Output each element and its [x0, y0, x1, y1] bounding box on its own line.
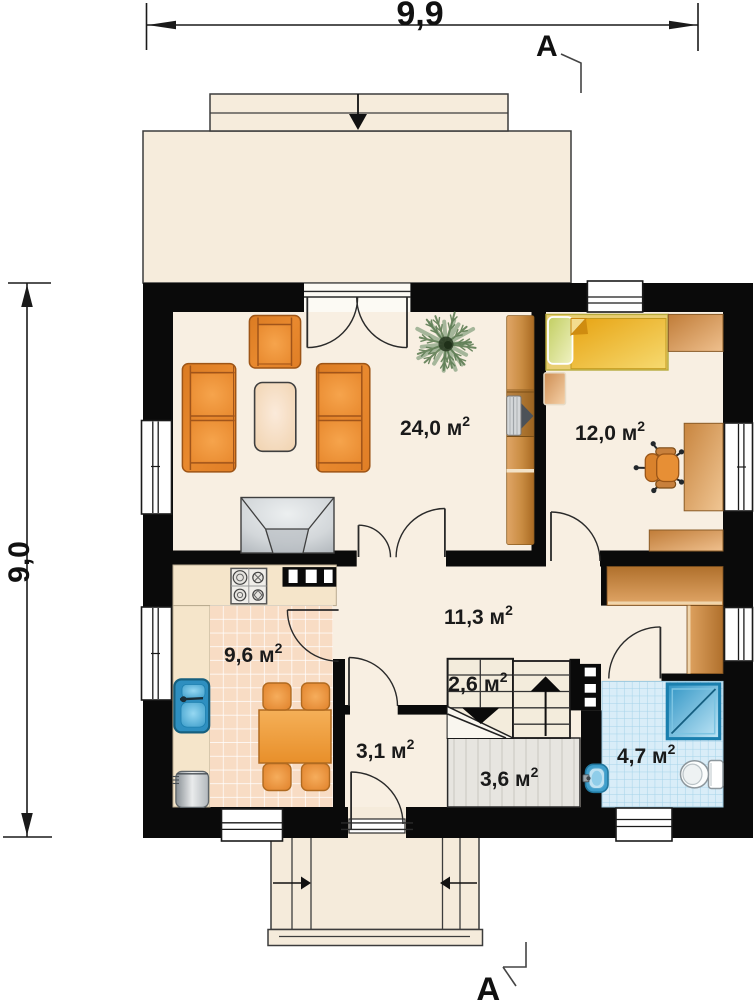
svg-text:2,6 м2: 2,6 м2 — [448, 669, 508, 696]
svg-text:A: A — [476, 971, 501, 1000]
svg-text:9,9: 9,9 — [396, 0, 443, 33]
svg-text:9,0: 9,0 — [3, 541, 36, 583]
svg-text:4,7 м2: 4,7 м2 — [617, 741, 676, 768]
svg-text:A: A — [536, 30, 558, 63]
svg-text:24,0 м2: 24,0 м2 — [400, 413, 470, 440]
svg-text:9,6 м2: 9,6 м2 — [224, 640, 283, 667]
svg-text:11,3 м2: 11,3 м2 — [444, 602, 513, 629]
svg-text:12,0 м2: 12,0 м2 — [575, 418, 645, 445]
svg-text:3,1 м2: 3,1 м2 — [356, 736, 415, 763]
svg-text:3,6 м2: 3,6 м2 — [480, 764, 539, 791]
